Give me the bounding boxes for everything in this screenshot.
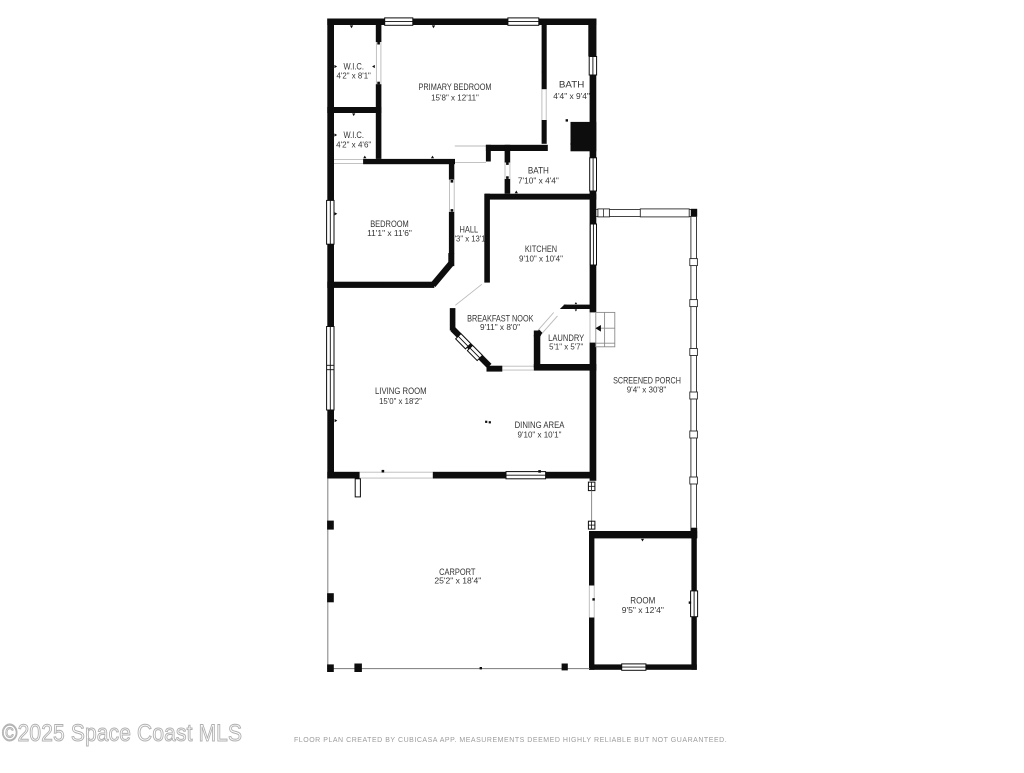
svg-text:5'1" x 5'7": 5'1" x 5'7" xyxy=(549,342,583,352)
svg-text:7'10" x 4'4": 7'10" x 4'4" xyxy=(518,176,559,186)
svg-text:KITCHEN: KITCHEN xyxy=(525,244,557,254)
svg-text:11'1" x 11'6": 11'1" x 11'6" xyxy=(367,228,412,238)
svg-text:9'10" x 10'4": 9'10" x 10'4" xyxy=(519,254,563,264)
svg-text:W.I.C.: W.I.C. xyxy=(343,130,364,140)
svg-text:4'2" x 8'1": 4'2" x 8'1" xyxy=(337,70,371,80)
svg-text:9'4" x 30'8": 9'4" x 30'8" xyxy=(627,385,667,395)
svg-text:15'8" x 12'11": 15'8" x 12'11" xyxy=(431,92,479,102)
svg-text:9'5" x 12'4": 9'5" x 12'4" xyxy=(622,605,664,615)
svg-text:9'11" x 8'0": 9'11" x 8'0" xyxy=(480,322,520,332)
svg-text:BATH: BATH xyxy=(559,80,584,90)
svg-text:4'2" x 4'6": 4'2" x 4'6" xyxy=(336,140,371,150)
svg-text:ROOM: ROOM xyxy=(630,595,655,605)
svg-text:9'10" x 10'1": 9'10" x 10'1" xyxy=(518,429,562,439)
svg-text:15'0" x 18'2": 15'0" x 18'2" xyxy=(379,396,422,406)
svg-text:25'2" x 18'4": 25'2" x 18'4" xyxy=(434,575,481,585)
svg-text:DINING AREA: DINING AREA xyxy=(515,420,565,430)
svg-text:BATH: BATH xyxy=(528,165,549,175)
svg-text:3'3" x 13'1": 3'3" x 13'1" xyxy=(450,234,488,244)
svg-text:LIVING ROOM: LIVING ROOM xyxy=(375,386,427,396)
svg-text:4'4" x 9'4": 4'4" x 9'4" xyxy=(553,91,590,101)
svg-text:PRIMARY BEDROOM: PRIMARY BEDROOM xyxy=(419,82,492,92)
